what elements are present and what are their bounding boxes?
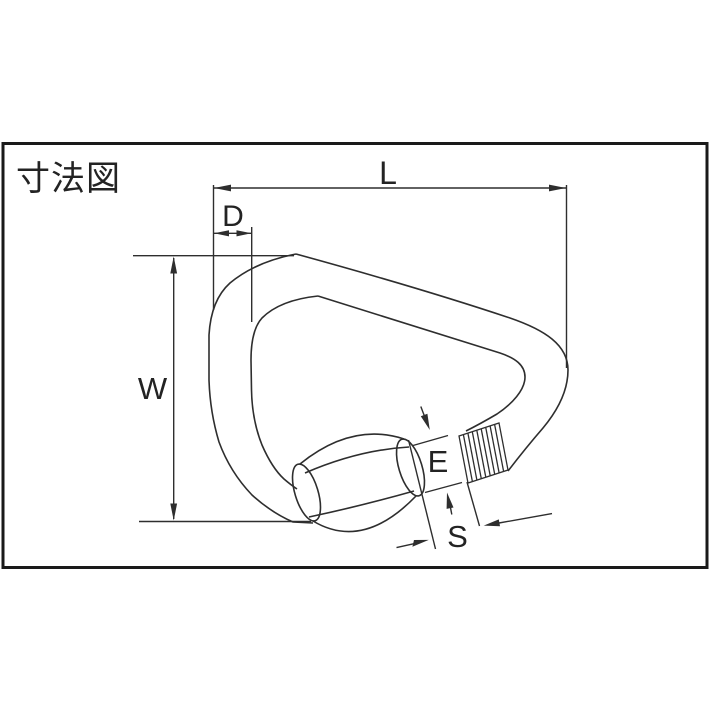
frame-border: [3, 144, 707, 568]
dimension-label-D: D: [222, 200, 244, 233]
diagram-canvas: L D W E: [0, 0, 713, 713]
dimension-diagram: L D W E: [0, 0, 713, 713]
dimension-label-E: E: [428, 444, 449, 479]
dimension-label-L: L: [379, 155, 397, 191]
dimension-label-S: S: [447, 519, 468, 554]
diagram-title: 寸法図: [16, 160, 121, 198]
dimension-label-W: W: [138, 371, 168, 406]
